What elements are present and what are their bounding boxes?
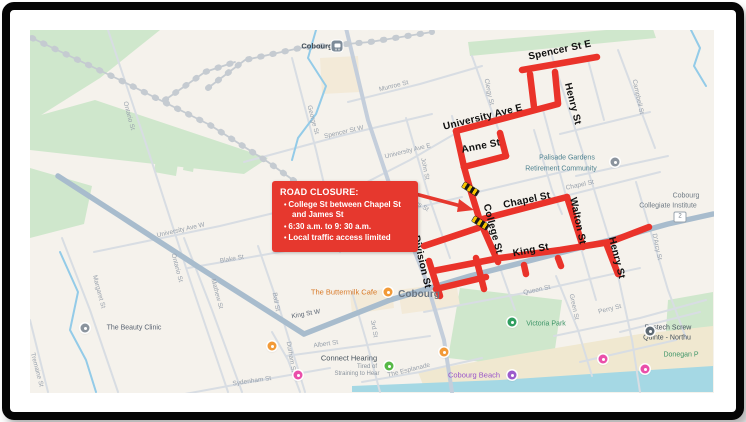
hazard-stripe-marker (461, 182, 479, 196)
street-label: Blake St (220, 255, 245, 266)
street-label: John St (419, 158, 430, 181)
callout-bullet-list: College St between Chapel St and James S… (280, 200, 411, 244)
street-label: 3rd St (368, 320, 377, 338)
street-label: Spencer St W (324, 125, 365, 140)
place-label: Victoria Park (526, 321, 566, 328)
place-label: Donegan P (663, 352, 698, 359)
street-label: Ball St (270, 292, 280, 312)
hearing-clinic-icon (385, 362, 394, 371)
street-map: Ontario StOntario StMargaret StMathew St… (30, 30, 714, 393)
street-label: Clergy St (482, 78, 494, 106)
place-label: Cobourg (398, 290, 440, 300)
lodging-icon (294, 371, 303, 380)
street-label: Green St (567, 294, 579, 321)
closed-street-label: University Ave E (442, 103, 523, 132)
business-icon (646, 327, 655, 336)
street-label: Perry St (598, 304, 622, 316)
closed-street-label: Anne St (461, 138, 501, 155)
place-label: Cobourg (301, 42, 332, 50)
closed-street-label: Henry St (562, 82, 582, 126)
place-label: Quinte - Northu (643, 335, 691, 342)
business-icon (81, 324, 90, 333)
street-label: D'Arcy St (650, 233, 662, 261)
street-label: University Ave W (156, 222, 205, 239)
place-label: Collegiate Institute (639, 203, 697, 210)
callout-title: ROAD CLOSURE: (280, 187, 411, 197)
place-label: Retirement Community (525, 165, 597, 172)
place-label: Palisade Gardens (539, 155, 595, 162)
business-icon (611, 158, 620, 167)
lodging-icon (599, 355, 608, 364)
lodging-icon (641, 365, 650, 374)
place-label: The Buttermilk Cafe (311, 288, 377, 296)
place-label: Cobourg Beach (448, 371, 500, 379)
closure-bullet: College St between Chapel St and James S… (284, 200, 411, 221)
beach-icon (508, 371, 517, 380)
street-label: Sydenham St (232, 376, 272, 388)
street-label: Mathew St (209, 278, 223, 309)
flyer-page: Ontario StOntario StMargaret StMathew St… (0, 0, 746, 422)
street-label: Queen St (523, 285, 551, 297)
restaurant-icon (268, 342, 277, 351)
street-label: Ontario St (121, 101, 135, 131)
closed-street-label: Chapel St (503, 191, 552, 211)
restaurant-icon (440, 348, 449, 357)
closed-street-label: Henry St (606, 236, 626, 280)
place-label: Cobourg (673, 193, 700, 200)
street-label: The Esplanade (387, 363, 431, 380)
closed-street-label: Walton St (567, 197, 587, 246)
train-station-icon (332, 41, 343, 52)
park-tree-icon (508, 318, 517, 327)
street-label: Albert St (313, 340, 339, 350)
place-label: Tired of (357, 364, 377, 370)
place-label: Connect Hearing (321, 354, 377, 362)
street-label: Margaret St (90, 275, 105, 309)
place-label: Straining to Hear (334, 371, 379, 377)
restaurant-icon (384, 288, 393, 297)
road-closure-callout: ROAD CLOSURE: College St between Chapel … (272, 181, 418, 252)
street-label: Durham St (284, 341, 296, 373)
closed-street-label: Spencer St E (528, 39, 593, 62)
closed-street-label: King St (512, 243, 550, 260)
street-label: Ontario St (169, 253, 183, 283)
street-label: George St (305, 105, 319, 135)
closure-bullet: 6:30 a.m. to 9: 30 a.m. (284, 222, 411, 232)
street-label: Munroe St (379, 80, 410, 94)
place-label: The Beauty Clinic (107, 325, 162, 332)
street-label: King St W (291, 309, 321, 320)
closure-bullet: Local traffic access limited (284, 233, 411, 243)
highway-2-shield: 2 (674, 212, 687, 223)
street-label: Chapel St (565, 180, 594, 192)
street-label: Tremaine St (30, 352, 44, 388)
street-label: Campbell St (630, 79, 644, 115)
